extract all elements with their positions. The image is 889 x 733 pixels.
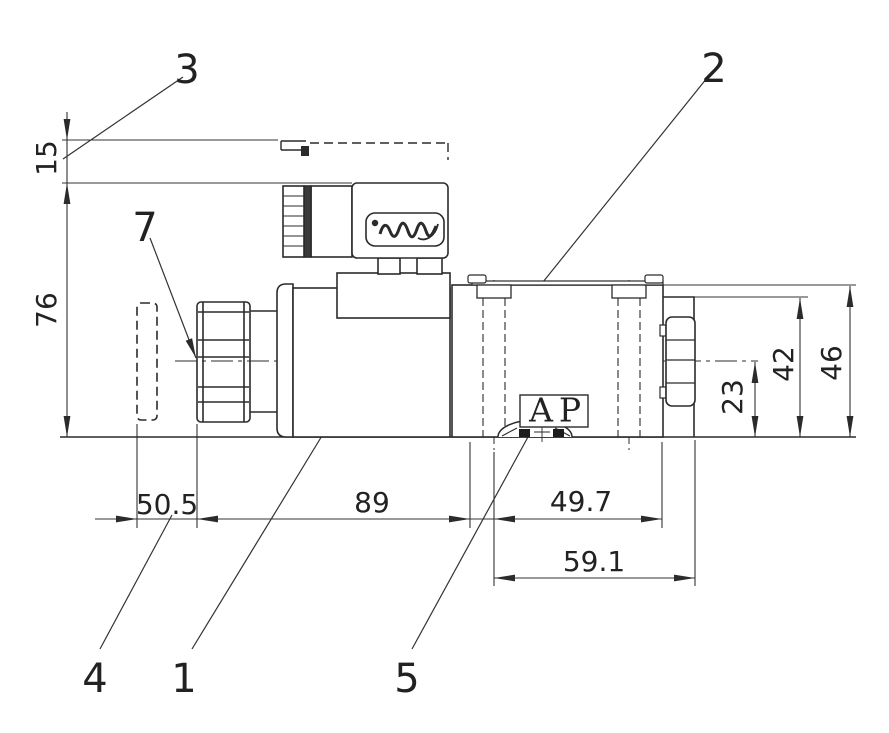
port-label-a: A	[529, 394, 553, 427]
leader-arrow	[186, 338, 196, 358]
callout-3: 3	[174, 50, 199, 90]
dim-50-5: 50.5	[136, 491, 198, 519]
dim-46: 46	[818, 345, 846, 381]
connector-tab	[378, 258, 400, 274]
bolt-counterbore	[477, 285, 511, 298]
callout-7: 7	[132, 208, 157, 248]
dim-42: 42	[770, 346, 798, 382]
dim-76: 76	[33, 292, 61, 328]
manual-override-knob	[137, 302, 277, 422]
end-block-and-nut	[660, 297, 695, 437]
callout-5: 5	[394, 659, 419, 699]
callout-1: 1	[171, 659, 196, 699]
dim-15: 15	[33, 140, 61, 176]
cable-gland-stem	[311, 186, 352, 257]
port-label-p: P	[559, 394, 581, 427]
knurled-end-nut	[666, 317, 695, 406]
coil-terminal-block	[337, 273, 450, 318]
label-plate	[366, 213, 444, 246]
callout-4: 4	[82, 659, 107, 699]
knob-pulled-phantom	[137, 303, 157, 420]
connector-tab	[417, 258, 442, 274]
port-seal	[519, 429, 530, 437]
solenoid-assembly	[277, 258, 450, 437]
dim-89: 89	[354, 489, 390, 517]
dim-49-7: 49.7	[550, 488, 612, 516]
dim-23: 23	[719, 379, 747, 415]
plate-screw-cap	[645, 275, 663, 283]
bolt-counterbore	[612, 285, 646, 298]
gland-thread-hatch	[304, 186, 311, 257]
port-seal	[553, 429, 564, 437]
callout-2: 2	[701, 49, 726, 89]
solenoid-end-cap	[277, 284, 293, 437]
drawing-linework	[0, 0, 889, 733]
dim-59-1: 59.1	[563, 548, 625, 576]
plate-screw-cap	[468, 275, 486, 283]
din-connector-plug	[283, 183, 448, 258]
valve-dimension-drawing: 3 2 7 4 1 5 15 76 50.5 89 49.7 59.1 23 4…	[0, 0, 889, 733]
phantom-gland-hook	[301, 146, 309, 156]
